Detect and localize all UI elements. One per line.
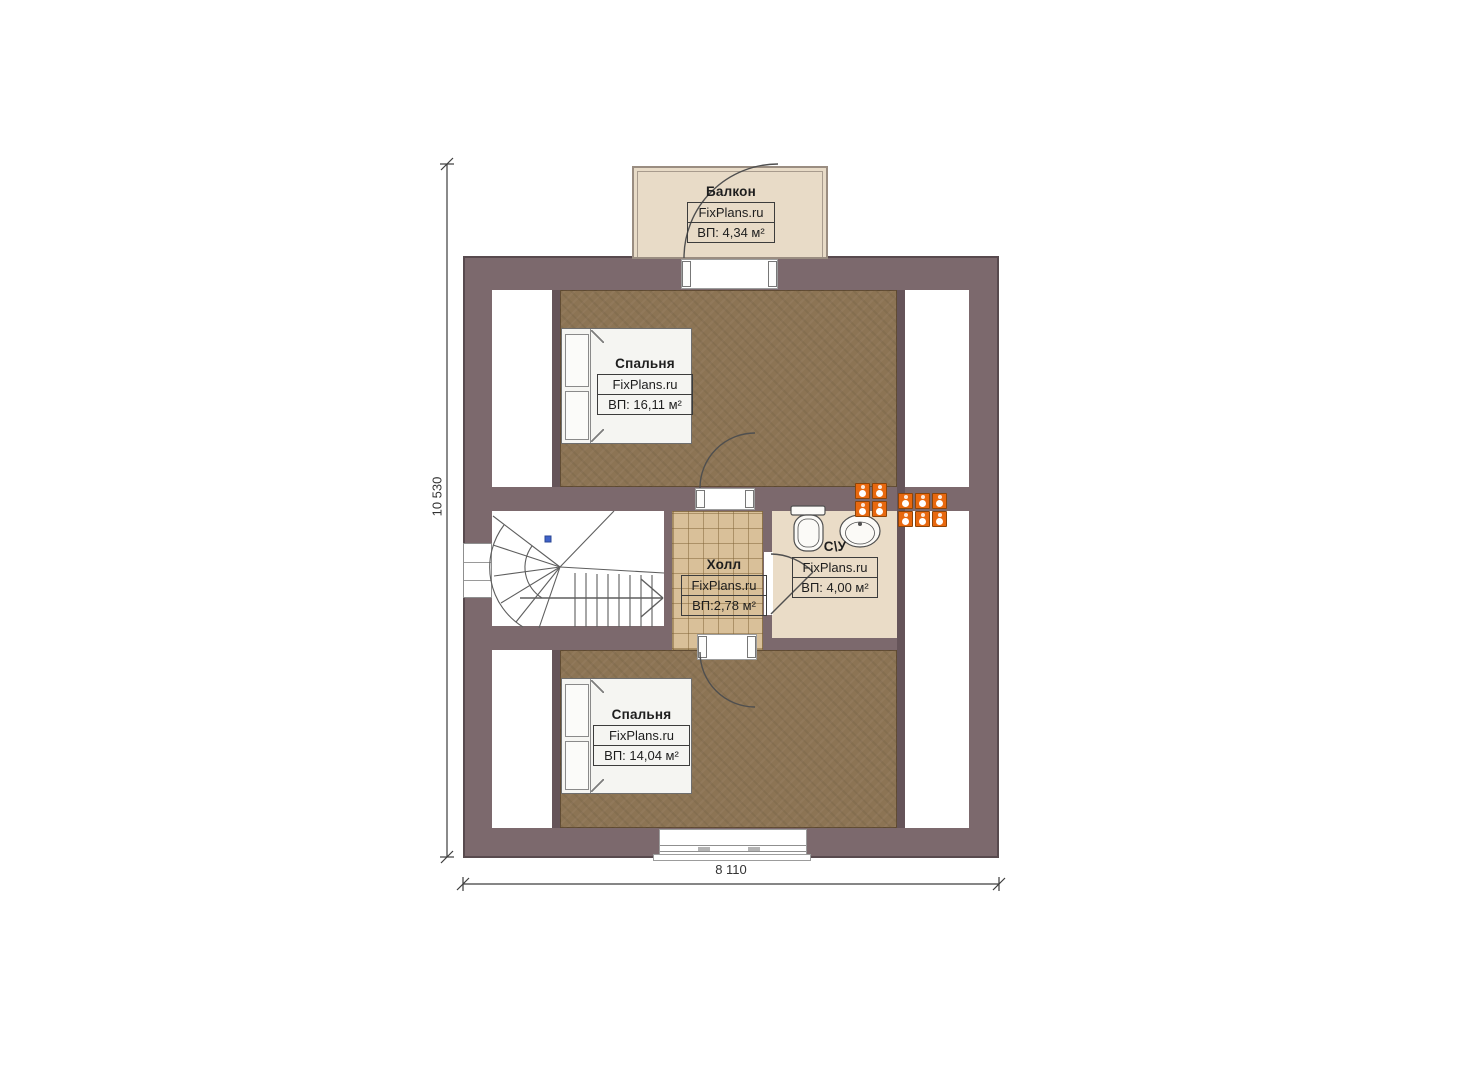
window-mullion (464, 580, 491, 581)
room-name: Балкон (687, 184, 775, 199)
vent-block (932, 511, 947, 527)
bedroom-bottom-door-opening (697, 634, 757, 660)
room-area-value: ВП: 16,11 м² (598, 395, 692, 414)
window-mullion (464, 562, 491, 563)
door-jamb (696, 490, 705, 508)
vent-block (915, 493, 930, 509)
vent-group (855, 483, 887, 517)
floor-plan-canvas: Балкон FixPlans.ru ВП: 4,34 м² Спальня F… (0, 0, 1474, 1080)
room-name: С\У (792, 539, 878, 554)
window-tick (698, 847, 710, 851)
vent-block (872, 483, 887, 499)
fixplans-watermark: FixPlans.ru (688, 203, 774, 223)
fixplans-watermark: FixPlans.ru (793, 558, 877, 578)
pillow-icon (565, 334, 589, 387)
vent-block (898, 493, 913, 509)
room-label-bathroom: С\У FixPlans.ru ВП: 4,00 м² (792, 539, 878, 598)
room-name: Холл (681, 557, 767, 572)
vent-group (898, 493, 947, 527)
pillow-icon (565, 684, 589, 737)
wall-bathroom-bottom (772, 638, 905, 650)
room-label-bedroom-bottom: Спальня FixPlans.ru ВП: 14,04 м² (593, 707, 690, 766)
door-jamb (768, 261, 777, 287)
attic-strip-right-middle (905, 511, 969, 828)
fixplans-watermark: FixPlans.ru (598, 375, 692, 395)
window-tick (748, 847, 760, 851)
blanket-fold (591, 680, 604, 693)
bedroom-top-door-opening (695, 488, 755, 510)
room-label-hall: Холл FixPlans.ru ВП:2,78 м² (681, 557, 767, 616)
dimension-height-label: 10 530 (430, 457, 445, 537)
room-name: Спальня (593, 707, 690, 722)
door-jamb (698, 636, 707, 658)
vent-block (932, 493, 947, 509)
knee-wall-right (897, 290, 905, 828)
vent-block (855, 483, 870, 499)
attic-strip-left-top (492, 290, 554, 487)
blanket-fold (591, 779, 604, 792)
blanket-edge (590, 329, 591, 443)
wall-middle-lower (492, 626, 672, 650)
vent-block (855, 501, 870, 517)
room-area-value: ВП: 4,34 м² (688, 223, 774, 242)
attic-strip-left-bottom (492, 650, 554, 828)
door-jamb (745, 490, 754, 508)
dimension-width-label: 8 110 (700, 862, 762, 877)
wall-right (969, 258, 997, 856)
window-frame (660, 845, 806, 852)
balcony-door-opening (681, 259, 778, 289)
window-bottom-wall (659, 829, 807, 854)
room-name: Спальня (597, 356, 693, 371)
blanket-fold (591, 429, 604, 442)
room-area-value: ВП:2,78 м² (682, 596, 766, 615)
room-area-value: ВП: 4,00 м² (793, 578, 877, 597)
dimension-width (457, 877, 1005, 891)
vent-block (898, 511, 913, 527)
vent-block (915, 511, 930, 527)
knee-wall-left-bottom (552, 650, 560, 828)
room-label-balcony: Балкон FixPlans.ru ВП: 4,34 м² (687, 184, 775, 243)
fixplans-watermark: FixPlans.ru (682, 576, 766, 596)
door-jamb (682, 261, 691, 287)
room-label-bedroom-top: Спальня FixPlans.ru ВП: 16,11 м² (597, 356, 693, 415)
pillow-icon (565, 741, 589, 790)
blanket-edge (590, 679, 591, 793)
room-area-value: ВП: 14,04 м² (594, 746, 689, 765)
door-jamb (747, 636, 756, 658)
vent-block (872, 501, 887, 517)
staircase-area (492, 511, 664, 628)
attic-strip-right-top (905, 290, 969, 487)
blanket-fold (591, 330, 604, 343)
wall-stairs-hall (664, 511, 672, 628)
window-left-wall (463, 543, 492, 598)
pillow-icon (565, 391, 589, 440)
window-sill (653, 854, 811, 861)
knee-wall-left-top (552, 290, 560, 487)
fixplans-watermark: FixPlans.ru (594, 726, 689, 746)
